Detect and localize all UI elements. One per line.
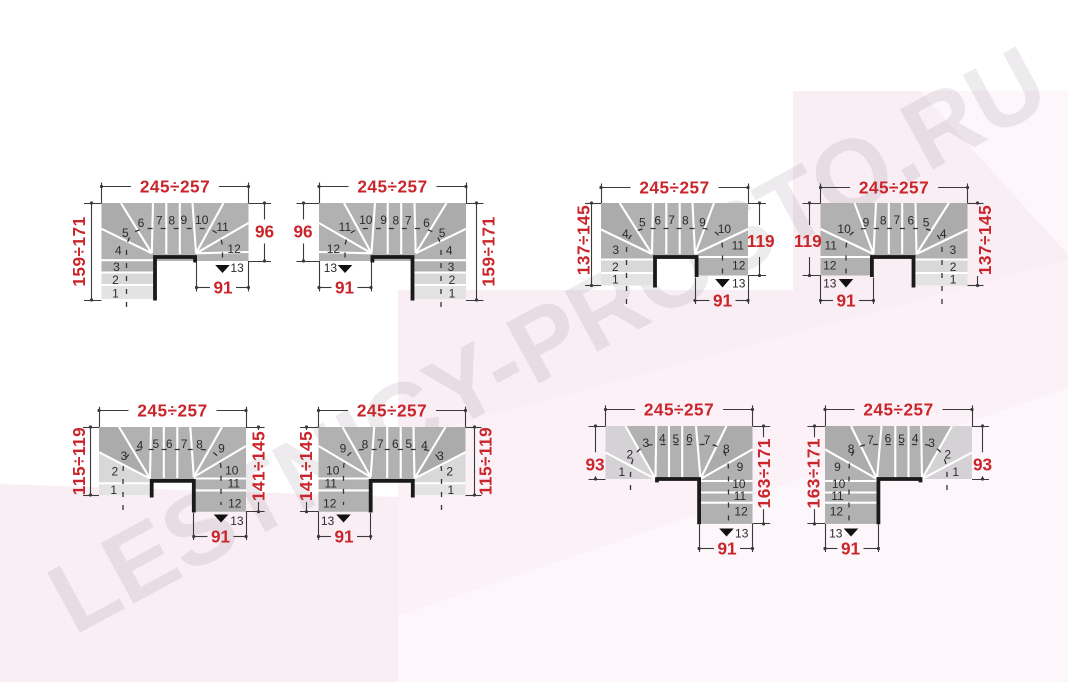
svg-text:91: 91 — [841, 539, 861, 559]
svg-text:91: 91 — [211, 527, 231, 547]
svg-text:6: 6 — [885, 432, 892, 446]
svg-text:93: 93 — [585, 454, 604, 474]
svg-text:12: 12 — [323, 497, 337, 511]
svg-text:10: 10 — [225, 464, 239, 478]
svg-text:91: 91 — [335, 278, 355, 298]
svg-text:11: 11 — [324, 477, 337, 491]
svg-text:5: 5 — [122, 226, 129, 240]
svg-text:245÷257: 245÷257 — [644, 400, 714, 420]
svg-text:10: 10 — [326, 464, 340, 478]
svg-text:7: 7 — [894, 213, 901, 227]
svg-text:12: 12 — [823, 258, 837, 272]
svg-text:8: 8 — [362, 437, 369, 451]
svg-text:115÷119: 115÷119 — [69, 427, 89, 495]
svg-text:91: 91 — [334, 527, 354, 547]
svg-text:12: 12 — [228, 497, 242, 511]
svg-text:2: 2 — [449, 273, 456, 287]
svg-text:13: 13 — [321, 514, 335, 528]
svg-text:8: 8 — [723, 442, 730, 456]
svg-text:7: 7 — [405, 214, 412, 228]
svg-text:119: 119 — [747, 231, 775, 251]
svg-text:7: 7 — [668, 213, 675, 227]
svg-text:6: 6 — [907, 214, 914, 228]
svg-text:245÷257: 245÷257 — [639, 178, 709, 198]
svg-text:5: 5 — [405, 437, 412, 451]
svg-text:137÷145: 137÷145 — [574, 205, 594, 275]
svg-text:8: 8 — [880, 214, 887, 228]
svg-text:119: 119 — [794, 231, 822, 251]
svg-text:9: 9 — [218, 442, 225, 456]
svg-text:9: 9 — [181, 213, 188, 227]
svg-text:9: 9 — [699, 215, 706, 229]
svg-text:8: 8 — [168, 214, 175, 228]
svg-text:1: 1 — [950, 273, 957, 287]
svg-text:93: 93 — [973, 454, 992, 474]
svg-text:2: 2 — [112, 273, 119, 287]
svg-text:13: 13 — [324, 261, 338, 275]
svg-text:10: 10 — [837, 222, 851, 236]
svg-text:10: 10 — [195, 213, 209, 227]
svg-text:245÷257: 245÷257 — [863, 400, 933, 420]
svg-text:6: 6 — [686, 432, 693, 446]
svg-text:6: 6 — [392, 437, 399, 451]
svg-text:3: 3 — [113, 260, 120, 274]
svg-text:6: 6 — [654, 214, 661, 228]
svg-text:12: 12 — [732, 258, 746, 272]
svg-text:8: 8 — [848, 442, 855, 456]
svg-text:7: 7 — [156, 214, 163, 228]
svg-text:3: 3 — [612, 243, 619, 257]
svg-text:245÷257: 245÷257 — [137, 401, 207, 421]
svg-text:2: 2 — [612, 260, 619, 274]
svg-text:9: 9 — [863, 215, 870, 229]
svg-text:5: 5 — [923, 216, 930, 230]
svg-text:11: 11 — [732, 238, 745, 252]
svg-text:9: 9 — [737, 460, 744, 474]
svg-text:7: 7 — [704, 433, 711, 447]
svg-text:7: 7 — [867, 433, 874, 447]
svg-text:245÷257: 245÷257 — [859, 178, 929, 198]
svg-text:4: 4 — [622, 227, 629, 241]
svg-text:141÷145: 141÷145 — [296, 431, 316, 501]
svg-text:5: 5 — [673, 432, 680, 446]
svg-text:1: 1 — [612, 273, 619, 287]
svg-text:11: 11 — [824, 238, 837, 252]
svg-text:10: 10 — [718, 222, 732, 236]
svg-text:3: 3 — [437, 449, 444, 463]
svg-text:11: 11 — [216, 220, 229, 234]
svg-text:2: 2 — [950, 260, 957, 274]
svg-text:5: 5 — [152, 437, 159, 451]
svg-text:13: 13 — [230, 514, 244, 528]
svg-text:4: 4 — [421, 439, 428, 453]
svg-text:11: 11 — [831, 489, 844, 503]
svg-text:4: 4 — [446, 244, 453, 258]
svg-text:96: 96 — [293, 222, 312, 242]
svg-text:12: 12 — [734, 504, 748, 518]
svg-text:2: 2 — [111, 465, 118, 479]
svg-text:1: 1 — [112, 287, 119, 301]
svg-text:245÷257: 245÷257 — [140, 177, 210, 197]
svg-text:91: 91 — [836, 291, 856, 311]
svg-text:6: 6 — [166, 437, 173, 451]
svg-text:1: 1 — [952, 465, 959, 479]
svg-text:3: 3 — [121, 449, 128, 463]
svg-text:1: 1 — [110, 483, 117, 497]
svg-text:12: 12 — [830, 504, 844, 518]
svg-text:6: 6 — [138, 216, 145, 230]
svg-text:141÷145: 141÷145 — [249, 431, 269, 501]
svg-text:91: 91 — [717, 539, 737, 559]
svg-text:2: 2 — [446, 465, 453, 479]
svg-text:163÷171: 163÷171 — [754, 438, 774, 508]
svg-text:13: 13 — [230, 261, 244, 275]
svg-text:12: 12 — [227, 242, 241, 256]
svg-text:11: 11 — [228, 477, 241, 491]
svg-text:137÷145: 137÷145 — [975, 205, 995, 275]
svg-text:5: 5 — [898, 432, 905, 446]
svg-text:12: 12 — [327, 242, 341, 256]
svg-text:159÷171: 159÷171 — [479, 216, 499, 286]
svg-text:245÷257: 245÷257 — [357, 401, 427, 421]
svg-text:4: 4 — [912, 432, 919, 446]
svg-text:9: 9 — [340, 442, 347, 456]
svg-text:91: 91 — [213, 278, 233, 298]
svg-text:8: 8 — [392, 214, 399, 228]
svg-text:115÷119: 115÷119 — [476, 427, 496, 495]
svg-text:9: 9 — [380, 213, 387, 227]
svg-text:8: 8 — [682, 214, 689, 228]
svg-text:1: 1 — [447, 483, 454, 497]
svg-text:13: 13 — [735, 526, 749, 540]
svg-text:3: 3 — [949, 243, 956, 257]
svg-text:3: 3 — [448, 260, 455, 274]
svg-text:3: 3 — [643, 436, 650, 450]
svg-text:1: 1 — [618, 465, 625, 479]
svg-text:96: 96 — [255, 222, 274, 242]
svg-text:9: 9 — [834, 460, 841, 474]
svg-text:2: 2 — [944, 448, 951, 462]
svg-text:245÷257: 245÷257 — [357, 177, 427, 197]
svg-text:11: 11 — [734, 489, 747, 503]
svg-text:4: 4 — [940, 227, 947, 241]
svg-text:5: 5 — [439, 226, 446, 240]
svg-text:7: 7 — [377, 437, 384, 451]
svg-text:11: 11 — [339, 220, 352, 234]
svg-text:163÷171: 163÷171 — [804, 438, 824, 508]
svg-text:7: 7 — [181, 437, 188, 451]
svg-text:3: 3 — [928, 436, 935, 450]
svg-text:1: 1 — [449, 287, 456, 301]
svg-text:2: 2 — [626, 448, 633, 462]
svg-text:4: 4 — [137, 439, 144, 453]
svg-text:4: 4 — [115, 244, 122, 258]
svg-text:91: 91 — [713, 291, 733, 311]
svg-text:6: 6 — [423, 216, 430, 230]
svg-text:13: 13 — [823, 276, 837, 290]
svg-text:8: 8 — [196, 437, 203, 451]
svg-text:159÷171: 159÷171 — [69, 216, 89, 286]
svg-text:5: 5 — [639, 216, 646, 230]
svg-text:13: 13 — [732, 276, 746, 290]
svg-text:10: 10 — [359, 213, 373, 227]
svg-text:4: 4 — [659, 432, 666, 446]
